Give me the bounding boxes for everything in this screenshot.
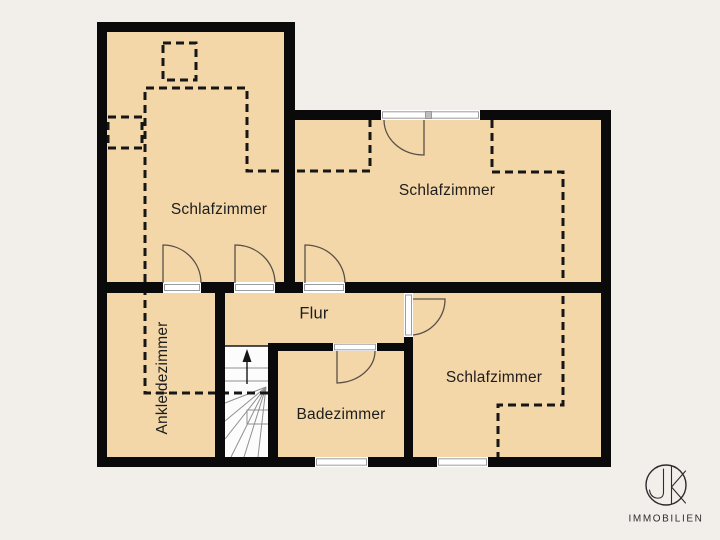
floor-plan-page: Schlafzimmer Schlafzimmer Schlafzimmer F… <box>0 0 720 540</box>
room-label-bedroom-top-right: Schlafzimmer <box>399 182 495 200</box>
room-label-bathroom: Badezimmer <box>297 406 386 424</box>
window-bottom-right <box>437 457 488 467</box>
floor-plan-drawing <box>0 0 720 540</box>
company-logo-mark <box>646 465 686 505</box>
room-label-hallway: Flur <box>299 305 328 324</box>
floor-area <box>107 32 601 457</box>
window-bottom-left <box>315 457 368 467</box>
room-label-bedroom-bottom-right: Schlafzimmer <box>446 369 542 387</box>
company-logo-wordmark: IMMOBILIEN <box>629 514 704 525</box>
window-top <box>381 110 480 120</box>
room-label-dressing-room: Ankleidezimmer <box>154 321 172 434</box>
staircase <box>225 346 268 457</box>
room-label-bedroom-left: Schlafzimmer <box>171 201 267 219</box>
jk-monogram-icon <box>650 467 686 504</box>
